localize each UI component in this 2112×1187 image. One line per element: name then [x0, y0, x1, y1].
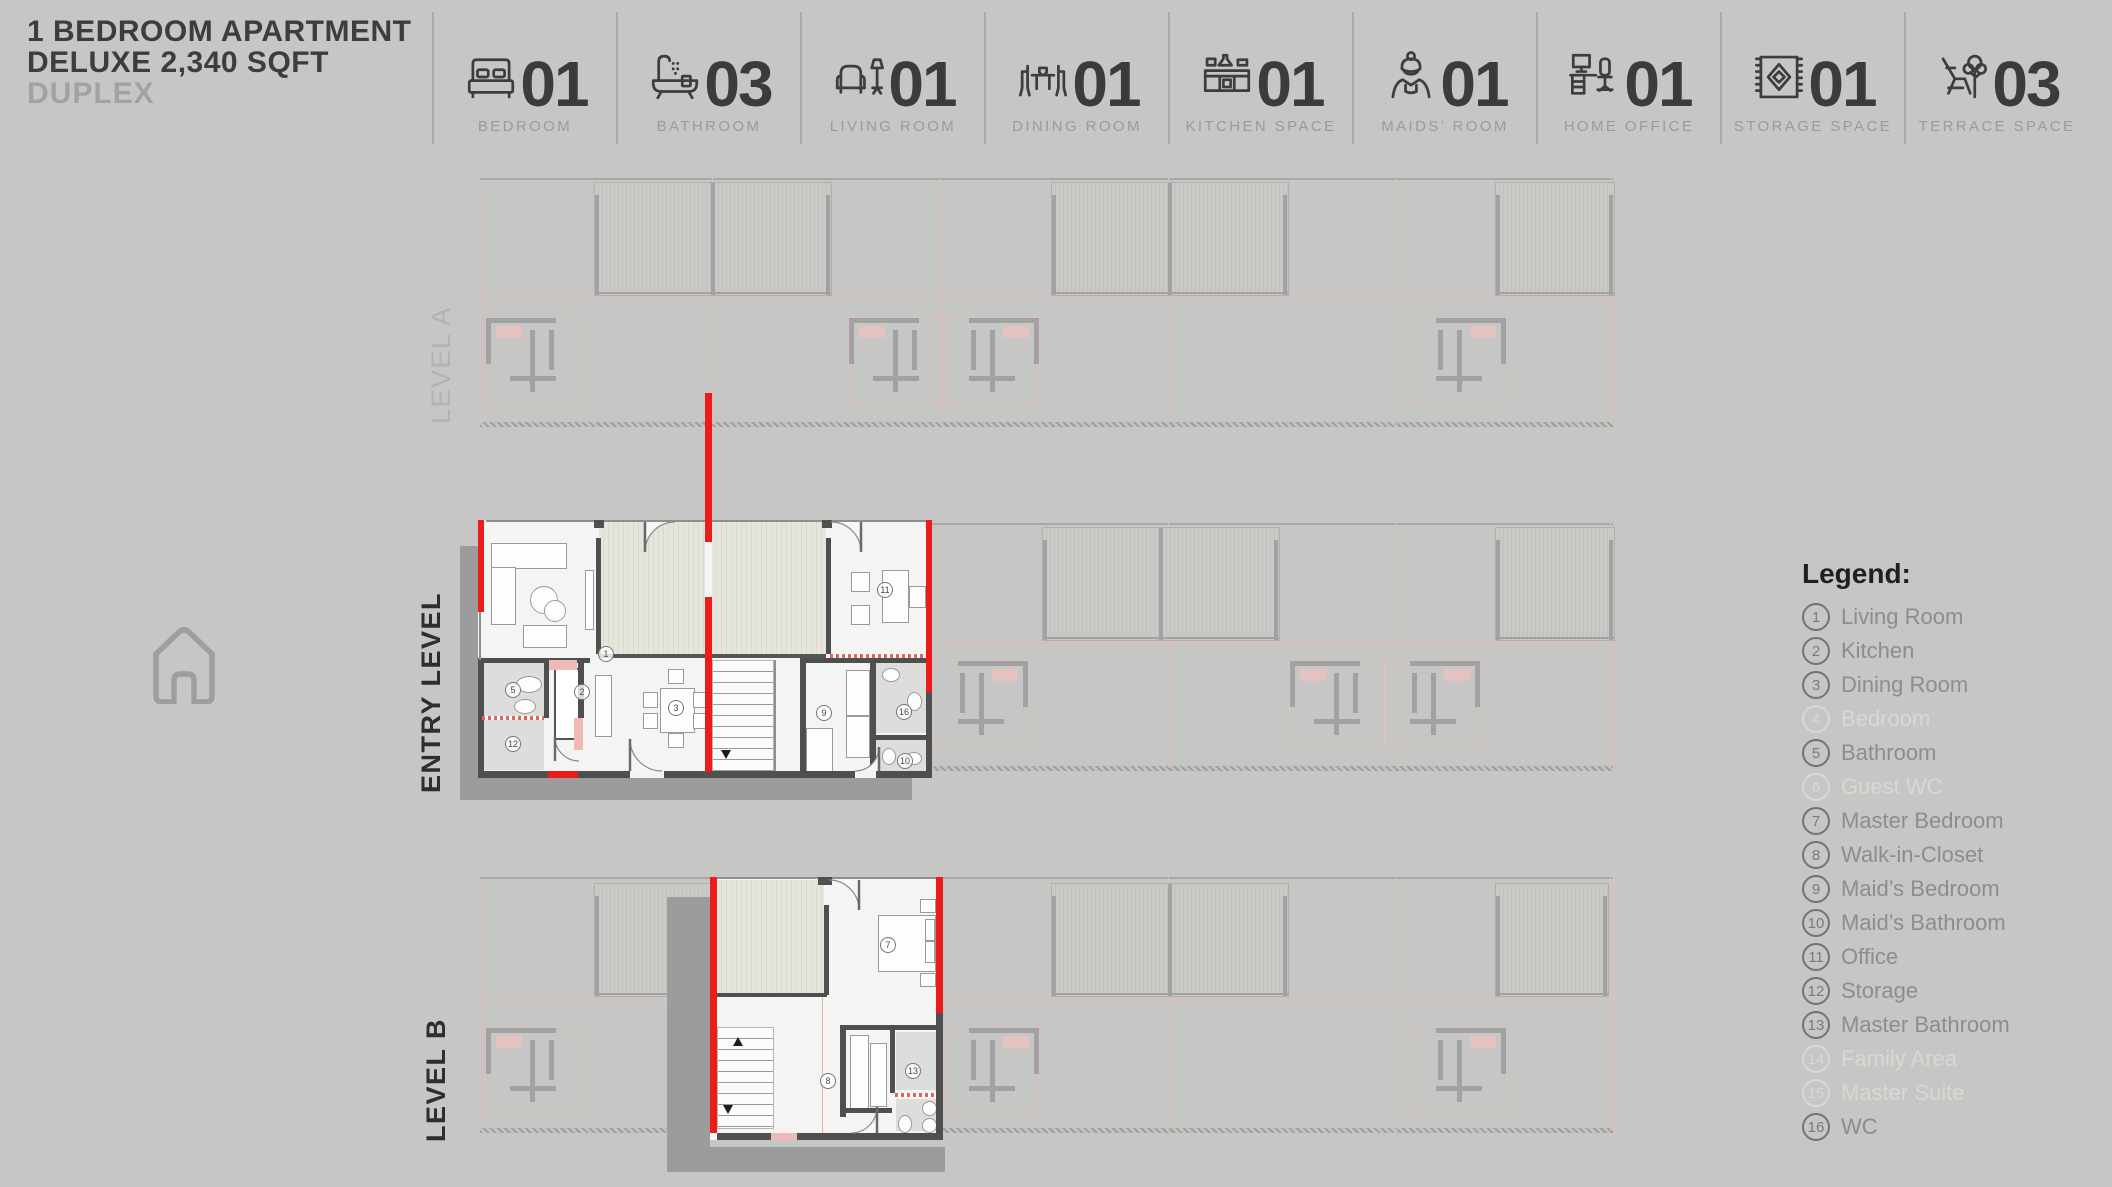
legend-number: 5: [1802, 739, 1830, 767]
wall-segment: [1501, 318, 1506, 364]
faded-terrace: [1051, 883, 1289, 997]
wall-segment: [969, 1086, 1015, 1091]
level-b-unit: 7813: [710, 877, 943, 1140]
faded-wall-cluster: [1410, 317, 1507, 404]
wall-segment: [1438, 330, 1443, 370]
wall-segment: [822, 997, 823, 1133]
legend-item: 6Guest WC: [1802, 770, 2010, 804]
legend-item: 10Maid’s Bathroom: [1802, 906, 2010, 940]
wall-segment: [1168, 884, 1172, 996]
stat-storage-space: 01 STORAGE SPACE: [1720, 12, 1904, 144]
stat-top: 01: [1750, 16, 1875, 114]
wall-segment: [840, 1025, 846, 1117]
stair-direction-arrow: [723, 1105, 733, 1114]
furniture: [898, 1115, 912, 1133]
furniture: [920, 973, 936, 987]
stair-direction-arrow: [721, 750, 731, 759]
legend-item: 9Maid’s Bedroom: [1802, 872, 2010, 906]
desk-icon: [1566, 48, 1624, 106]
wall-segment: [830, 654, 926, 658]
wall-segment: [800, 658, 932, 663]
header-title-block: 1 BEDROOM APARTMENT DELUXE 2,340 SQFT DU…: [27, 16, 412, 109]
wall-segment: [800, 663, 806, 772]
room-marker: 5: [505, 682, 521, 698]
wall-segment: [958, 719, 1004, 724]
legend-label: Family Area: [1841, 1046, 1957, 1072]
wall-segment: [1043, 540, 1047, 640]
page-title: 1 BEDROOM APARTMENT: [27, 16, 412, 47]
legend-number: 4: [1802, 705, 1830, 733]
stat-top: 03: [1934, 16, 2059, 114]
dining-icon: [1014, 48, 1072, 106]
faded-wall-cluster: [943, 1027, 1040, 1114]
stat-count: 03: [704, 55, 771, 114]
floorplan-sheet: 1 BEDROOM APARTMENT DELUXE 2,340 SQFT DU…: [0, 0, 2112, 1187]
furniture: [491, 567, 516, 625]
faded-pinkH: [480, 296, 1613, 297]
legend-item: 16WC: [1802, 1110, 2010, 1144]
faded-terrace: [594, 182, 832, 296]
furniture: [922, 1101, 937, 1116]
wall-segment: [969, 1028, 1039, 1033]
furniture: [491, 543, 567, 569]
stat-top: 01: [830, 16, 955, 114]
wall-segment: [1603, 896, 1607, 996]
stat-count: 01: [888, 55, 955, 114]
wall-segment: [548, 771, 578, 778]
wall-segment: [960, 673, 965, 713]
wall-segment: [1274, 540, 1278, 640]
stat-count: 01: [1624, 55, 1691, 114]
wall-segment: [824, 905, 829, 995]
wall-fill: [1300, 669, 1326, 681]
wall-segment: [958, 661, 1028, 666]
stat-top: 01: [1566, 16, 1691, 114]
wall-segment: [1496, 993, 1608, 995]
faded-wall-cluster: [1289, 660, 1386, 747]
stat-top: 01: [1382, 16, 1507, 114]
room-marker: 10: [897, 753, 913, 769]
wall-segment: [893, 330, 898, 392]
faded-wall-cluster: [1384, 660, 1481, 747]
stat-count: 01: [520, 55, 587, 114]
stat-count: 03: [1992, 55, 2059, 114]
faded-terrace: [1495, 883, 1609, 997]
wall-segment: [969, 376, 1015, 381]
wall-segment: [1023, 661, 1028, 707]
wall-segment: [849, 318, 919, 323]
wall-segment: [1410, 719, 1456, 724]
terrace-area: [717, 880, 824, 997]
entry-unit-shadow: [460, 546, 478, 800]
wall-segment: [1052, 195, 1056, 295]
stat-top: 01: [1198, 16, 1323, 114]
legend-number: 8: [1802, 841, 1830, 869]
wall-segment: [595, 896, 599, 996]
furniture: [846, 670, 870, 716]
wall-segment: [1034, 1028, 1039, 1074]
legend-item: 14Family Area: [1802, 1042, 2010, 1076]
wall-segment: [936, 877, 943, 1013]
legend-number: 12: [1802, 977, 1830, 1005]
wall-segment: [710, 877, 717, 1133]
wall-segment: [711, 183, 715, 295]
wall-segment: [971, 330, 976, 370]
wall-segment: [664, 771, 855, 778]
wall-segment: [1609, 540, 1613, 640]
stat-kitchen-space: 01 KITCHEN SPACE: [1168, 12, 1352, 144]
legend-label: WC: [1841, 1114, 1878, 1140]
wall-segment: [876, 771, 932, 778]
levelb-unit-shadow: [667, 897, 710, 1172]
wall-segment: [549, 330, 554, 370]
wall-segment: [876, 735, 932, 740]
faded-terrace: [1495, 182, 1615, 296]
legend-number: 16: [1802, 1113, 1830, 1141]
armchair-icon: [830, 48, 888, 106]
faded-terrace: [1495, 527, 1615, 641]
faded-pink: [1396, 877, 1397, 1131]
bed-icon: [462, 48, 520, 106]
wall-segment: [1496, 540, 1500, 640]
wall-segment: [479, 612, 481, 660]
wall-segment: [486, 318, 556, 323]
legend-label: Master Bathroom: [1841, 1012, 2010, 1038]
entry-level-unit: 1235910111216: [478, 520, 932, 778]
level-b-plan: [480, 877, 1613, 1135]
legend-label: Master Bedroom: [1841, 808, 2004, 834]
wall-segment: [1290, 661, 1295, 707]
legend-item: 5Bathroom: [1802, 736, 2010, 770]
room-marker: 11: [877, 582, 893, 598]
stat-label: BATHROOM: [657, 118, 762, 135]
stat-label: LIVING ROOM: [830, 118, 956, 135]
legend-number: 14: [1802, 1045, 1830, 1073]
wall-segment: [596, 538, 601, 654]
faded-pink: [1396, 178, 1397, 424]
wall-fill: [1444, 669, 1470, 681]
legend-item: 4Bedroom: [1802, 702, 2010, 736]
legend-label: Maid’s Bedroom: [1841, 876, 2000, 902]
wall-segment: [1283, 896, 1287, 996]
wall-fill: [1470, 326, 1496, 338]
furniture: [544, 600, 566, 622]
faded-wall-cluster: [943, 317, 1040, 404]
wall-segment: [1353, 673, 1358, 713]
stat-count: 01: [1440, 55, 1507, 114]
stats-bar: 01 BEDROOM 03 BATHROOM 01 LIVING ROOM 01…: [432, 12, 2088, 144]
door-arc: [555, 737, 579, 761]
legend-number: 15: [1802, 1079, 1830, 1107]
furniture: [851, 572, 870, 592]
wall-segment: [1052, 896, 1056, 996]
stat-count: 01: [1072, 55, 1139, 114]
wall-segment: [936, 1013, 943, 1140]
stat-count: 01: [1808, 55, 1875, 114]
wall-segment: [969, 318, 1039, 323]
door-arc: [829, 880, 859, 910]
terrace-area: [712, 522, 826, 658]
wall-segment: [971, 1040, 976, 1080]
wall-segment: [1431, 673, 1436, 735]
legend-label: Office: [1841, 944, 1898, 970]
wall-segment: [1609, 195, 1613, 295]
legend-label: Bedroom: [1841, 706, 1930, 732]
wall-segment: [1412, 673, 1417, 713]
wall-segment: [895, 1093, 936, 1097]
wall-segment: [896, 1032, 936, 1090]
wall-segment: [478, 771, 548, 778]
wall-segment: [1436, 1086, 1482, 1091]
furniture: [850, 1035, 869, 1109]
faded-pink: [1610, 877, 1611, 1131]
room-marker: 7: [880, 937, 896, 953]
room-marker: 2: [574, 684, 590, 700]
furniture: [523, 625, 567, 648]
wall-segment: [486, 1028, 491, 1074]
wall-fill: [1003, 326, 1029, 338]
wall-segment: [1436, 1028, 1506, 1033]
wall-segment: [1475, 661, 1480, 707]
wall-fill: [992, 669, 1018, 681]
wall-segment: [1410, 661, 1480, 666]
wall-segment: [890, 1030, 895, 1093]
wall-segment: [478, 520, 484, 612]
furniture: [870, 1043, 887, 1107]
faded-top: [480, 178, 1613, 180]
stat-label: DINING ROOM: [1012, 118, 1142, 135]
faded-wall-cluster: [848, 317, 945, 404]
level-a-label: LEVEL A: [426, 306, 457, 424]
wall-segment: [873, 376, 919, 381]
stat-home-office: 01 HOME OFFICE: [1536, 12, 1720, 144]
room-marker: 9: [816, 705, 832, 721]
stat-count: 01: [1256, 55, 1323, 114]
door-arc: [630, 739, 662, 771]
furniture: [595, 675, 612, 737]
door-arc: [645, 522, 675, 552]
terrace-icon: [1934, 48, 1992, 106]
legend-number: 13: [1802, 1011, 1830, 1039]
wall-segment: [530, 1040, 535, 1102]
legend-item: 13Master Bathroom: [1802, 1008, 2010, 1042]
wall-segment: [510, 376, 556, 381]
faded-hatch: [930, 766, 1613, 771]
wall-segment: [549, 1040, 554, 1080]
wall-segment: [1159, 528, 1163, 640]
stat-label: MAIDS’ ROOM: [1381, 118, 1509, 135]
furniture: [643, 692, 658, 708]
legend-items: 1Living Room2Kitchen3Dining Room4Bedroom…: [1802, 600, 2010, 1144]
wall-segment: [705, 597, 712, 772]
wall-segment: [849, 318, 854, 364]
wall-segment: [840, 1025, 938, 1030]
furniture: [882, 668, 900, 682]
page-subtitle: DELUXE 2,340 SQFT: [27, 47, 412, 78]
wall-fill: [496, 326, 522, 338]
room-marker: 8: [820, 1073, 836, 1089]
faded-wall-cluster: [485, 1027, 582, 1114]
wall-segment: [544, 663, 549, 718]
wall-segment: [482, 716, 544, 720]
wall-segment: [510, 1086, 556, 1091]
legend-item: 8Walk-in-Closet: [1802, 838, 2010, 872]
wall-segment: [705, 520, 712, 542]
stat-bathroom: 03 BATHROOM: [616, 12, 800, 144]
faded-pinkH: [480, 1001, 1613, 1002]
level-b-label: LEVEL B: [421, 1018, 452, 1142]
legend-number: 2: [1802, 637, 1830, 665]
legend-label: Walk-in-Closet: [1841, 842, 1983, 868]
legend-item: 2Kitchen: [1802, 634, 2010, 668]
legend-item: 3Dining Room: [1802, 668, 2010, 702]
furniture: [668, 669, 684, 684]
room-marker: 13: [905, 1063, 921, 1079]
legend-label: Master Suite: [1841, 1080, 1965, 1106]
home-icon: [146, 620, 222, 704]
wall-segment: [1436, 376, 1482, 381]
stat-top: 03: [646, 16, 771, 114]
wall-segment: [1290, 661, 1360, 666]
wall-segment: [1457, 1040, 1462, 1102]
wall-segment: [1438, 1040, 1443, 1080]
legend-number: 7: [1802, 807, 1830, 835]
stat-living-room: 01 LIVING ROOM: [800, 12, 984, 144]
wall-segment: [594, 520, 604, 528]
wall-segment: [990, 1040, 995, 1102]
section-cut-line: [705, 393, 712, 520]
maid-icon: [1382, 48, 1440, 106]
stat-terrace-space: 03 TERRACE SPACE: [1904, 12, 2088, 144]
wall-segment: [990, 330, 995, 392]
levelb-unit-shadow: [710, 1147, 945, 1172]
stat-maids-room: 01 MAIDS’ ROOM: [1352, 12, 1536, 144]
legend-label: Living Room: [1841, 604, 1963, 630]
faded-wall-cluster: [1410, 1027, 1507, 1114]
wall-segment: [1436, 318, 1506, 323]
legend-label: Storage: [1841, 978, 1918, 1004]
stat-label: STORAGE SPACE: [1734, 118, 1892, 135]
furniture: [909, 586, 926, 608]
door-arc: [831, 522, 861, 552]
kitchen-icon: [1198, 48, 1256, 106]
wall-segment: [549, 660, 577, 670]
stat-top: 01: [462, 16, 587, 114]
furniture: [806, 728, 833, 772]
furniture: [920, 899, 936, 913]
legend-label: Maid’s Bathroom: [1841, 910, 2006, 936]
furniture: [668, 733, 684, 748]
legend-label: Kitchen: [1841, 638, 1914, 664]
wall-segment: [595, 195, 599, 295]
furniture: [925, 919, 935, 941]
door-arc: [855, 747, 879, 771]
door-arc: [851, 1107, 877, 1133]
rug-icon: [1750, 48, 1808, 106]
wall-segment: [717, 1133, 771, 1140]
room-marker: 1: [598, 646, 614, 662]
legend-number: 9: [1802, 875, 1830, 903]
legend-label: Dining Room: [1841, 672, 1968, 698]
stat-label: KITCHEN SPACE: [1186, 118, 1337, 135]
wall-segment: [979, 673, 984, 735]
faded-wall-cluster: [932, 660, 1029, 747]
stat-bedroom: 01 BEDROOM: [432, 12, 616, 144]
room-marker: 16: [896, 704, 912, 720]
legend-item: 7Master Bedroom: [1802, 804, 2010, 838]
legend-label: Guest WC: [1841, 774, 1942, 800]
wall-segment: [1334, 673, 1339, 735]
legend-item: 11Office: [1802, 940, 2010, 974]
furniture: [925, 941, 935, 963]
room-marker: 12: [505, 736, 521, 752]
page-type-label: DUPLEX: [27, 78, 412, 109]
legend-heading: Legend:: [1802, 558, 2010, 590]
wall-segment: [1501, 1028, 1506, 1074]
wall-segment: [486, 318, 491, 364]
wall-segment: [826, 538, 831, 654]
stair-direction-arrow: [733, 1037, 743, 1046]
furniture: [851, 605, 870, 625]
room-marker: 3: [668, 700, 684, 716]
furniture: [643, 713, 658, 729]
wall-segment: [1283, 195, 1287, 295]
wall-segment: [774, 660, 776, 771]
bathtub-icon: [646, 48, 704, 106]
stat-label: BEDROOM: [478, 118, 572, 135]
entry-level-label: ENTRY LEVEL: [416, 592, 447, 793]
legend-label: Bathroom: [1841, 740, 1936, 766]
legend-number: 3: [1802, 671, 1830, 699]
wall-segment: [771, 1133, 797, 1140]
faded-terrace: [1042, 527, 1280, 641]
wall-segment: [486, 1028, 556, 1033]
stat-label: HOME OFFICE: [1564, 118, 1695, 135]
wall-fill: [1003, 1036, 1029, 1048]
legend-number: 6: [1802, 773, 1830, 801]
wall-fill: [496, 1036, 522, 1048]
faded-wall-cluster: [485, 317, 582, 404]
stat-label: TERRACE SPACE: [1919, 118, 2076, 135]
legend-number: 1: [1802, 603, 1830, 631]
wall-segment: [1168, 183, 1172, 295]
wall-segment: [1496, 637, 1614, 639]
level-a-plan: [480, 178, 1613, 428]
legend-item: 12Storage: [1802, 974, 2010, 1008]
wall-segment: [912, 330, 917, 370]
wall-segment: [1314, 719, 1360, 724]
furniture: [514, 699, 536, 714]
faded-top: [930, 523, 1613, 525]
wall-segment: [578, 771, 630, 778]
stat-top: 01: [1014, 16, 1139, 114]
wall-segment: [926, 520, 932, 692]
wall-segment: [1496, 195, 1500, 295]
wall-segment: [530, 330, 535, 392]
wall-segment: [1457, 330, 1462, 392]
wall-segment: [1496, 896, 1500, 996]
legend-item: 1Living Room: [1802, 600, 2010, 634]
legend-number: 10: [1802, 909, 1830, 937]
legend-item: 15Master Suite: [1802, 1076, 2010, 1110]
faded-top: [480, 877, 1613, 879]
wall-fill: [859, 326, 885, 338]
faded-terrace: [1051, 182, 1289, 296]
wall-segment: [826, 195, 830, 295]
furniture: [585, 570, 594, 630]
wall-segment: [797, 1133, 936, 1140]
faded-hatch: [480, 422, 1613, 427]
